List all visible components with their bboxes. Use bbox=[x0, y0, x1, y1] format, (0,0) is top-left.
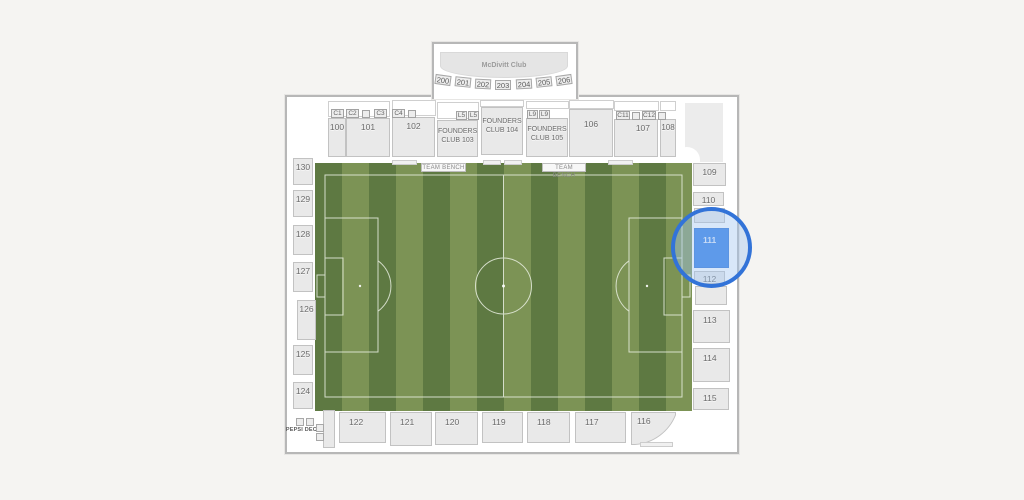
section-115[interactable]: 115 bbox=[693, 388, 729, 410]
seatmap-canvas: McDivitt Club 200 201 202 203 204 205 20… bbox=[0, 0, 1024, 500]
section-102[interactable]: 102 bbox=[392, 117, 435, 157]
suite-box[interactable] bbox=[362, 110, 370, 118]
selection-ring bbox=[671, 207, 752, 288]
section-202[interactable]: 202 bbox=[475, 78, 492, 89]
section-107[interactable]: 107 bbox=[614, 119, 658, 157]
suite-c3[interactable]: C3 bbox=[374, 109, 387, 118]
section-205[interactable]: 205 bbox=[536, 76, 553, 88]
section-101[interactable]: 101 bbox=[346, 118, 390, 157]
suite-c11[interactable]: C11 bbox=[616, 111, 630, 120]
bench-platform bbox=[504, 160, 522, 165]
suite-shelf bbox=[660, 101, 676, 111]
section-116-label: 116 bbox=[637, 416, 651, 426]
section-125[interactable]: 125 bbox=[293, 345, 313, 375]
section-120[interactable]: 120 bbox=[435, 412, 478, 445]
section-108[interactable]: 108 bbox=[660, 119, 676, 157]
section-119[interactable]: 119 bbox=[482, 412, 523, 443]
section-100[interactable]: 100 bbox=[328, 118, 346, 157]
suite-l5-b[interactable]: L5 bbox=[468, 111, 479, 120]
suite-l5-a[interactable]: L5 bbox=[456, 111, 467, 120]
section-founders-club-103[interactable]: FOUNDERS CLUB 103 bbox=[437, 120, 478, 157]
walkway-bar bbox=[640, 442, 673, 447]
soccer-field bbox=[315, 163, 692, 411]
suite-c12[interactable]: C12 bbox=[642, 111, 656, 120]
section-128[interactable]: 128 bbox=[293, 225, 313, 255]
stairwell-box bbox=[323, 410, 335, 448]
team-bench-away: TEAM BENCH bbox=[542, 163, 586, 172]
amenity-box bbox=[296, 418, 304, 426]
suite-shelf bbox=[614, 101, 659, 111]
section-106[interactable]: 106 bbox=[569, 109, 613, 157]
suite-box[interactable] bbox=[632, 112, 640, 120]
section-118[interactable]: 118 bbox=[527, 412, 570, 443]
section-129[interactable]: 129 bbox=[293, 190, 313, 217]
amenity-box bbox=[316, 424, 324, 432]
suite-l9-a[interactable]: L9 bbox=[527, 110, 538, 119]
section-121[interactable]: 121 bbox=[390, 412, 432, 446]
section-127[interactable]: 127 bbox=[293, 262, 313, 292]
section-116[interactable]: 116 bbox=[631, 412, 677, 445]
corner-cut bbox=[685, 147, 700, 162]
amenity-box bbox=[316, 433, 324, 441]
mcdivitt-club-label: McDivitt Club bbox=[482, 62, 527, 69]
bench-platform bbox=[483, 160, 501, 165]
section-114[interactable]: 114 bbox=[693, 348, 730, 382]
section-122[interactable]: 122 bbox=[339, 412, 386, 443]
amenity-box bbox=[306, 418, 314, 426]
suite-box[interactable] bbox=[658, 112, 666, 120]
suite-box[interactable] bbox=[408, 110, 416, 118]
section-founders-club-104[interactable]: FOUNDERS CLUB 104 bbox=[481, 107, 523, 155]
section-113[interactable]: 113 bbox=[693, 310, 730, 343]
suite-c2[interactable]: C2 bbox=[346, 109, 359, 118]
suite-c4[interactable]: C4 bbox=[392, 109, 405, 118]
suite-shelf bbox=[569, 100, 614, 109]
bench-platform bbox=[392, 160, 417, 165]
suite-shelf bbox=[526, 101, 569, 109]
section-204[interactable]: 204 bbox=[516, 78, 533, 89]
suite-shelf bbox=[480, 100, 524, 107]
team-bench-home: TEAM BENCH bbox=[421, 163, 466, 172]
section-founders-club-105[interactable]: FOUNDERS CLUB 105 bbox=[526, 118, 568, 157]
section-130[interactable]: 130 bbox=[293, 158, 313, 185]
section-124[interactable]: 124 bbox=[293, 382, 313, 409]
section-203[interactable]: 203 bbox=[495, 80, 511, 90]
section-200[interactable]: 200 bbox=[434, 74, 451, 86]
suite-l9-b[interactable]: L9 bbox=[539, 110, 550, 119]
section-201[interactable]: 201 bbox=[455, 76, 472, 88]
suite-c1[interactable]: C1 bbox=[331, 109, 344, 118]
section-110[interactable]: 110 bbox=[693, 192, 724, 206]
section-mcdivitt-club[interactable]: McDivitt Club bbox=[440, 52, 568, 78]
section-112-lower[interactable] bbox=[695, 286, 727, 305]
section-117[interactable]: 117 bbox=[575, 412, 626, 443]
section-109[interactable]: 109 bbox=[693, 163, 726, 186]
corner-structure bbox=[685, 103, 723, 162]
bench-platform bbox=[608, 160, 633, 165]
field-markings bbox=[315, 163, 692, 411]
section-126[interactable]: 126 bbox=[297, 300, 316, 340]
